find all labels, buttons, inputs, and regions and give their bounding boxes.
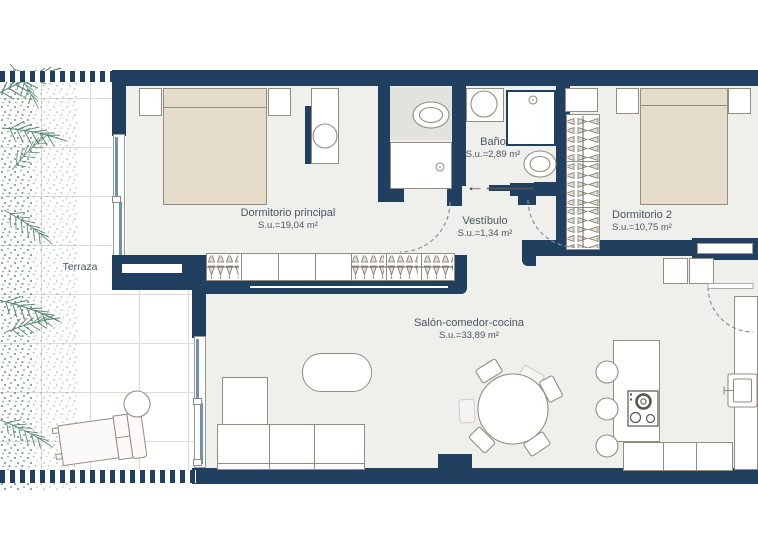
window-tick <box>112 196 121 203</box>
wall-top <box>112 70 758 86</box>
wall-wardrobe-back <box>206 280 456 294</box>
wall-south-pillar <box>438 454 472 470</box>
hall-cabinet <box>689 258 714 284</box>
label-terraza: Terraza <box>48 261 112 273</box>
salon-window-pane <box>200 403 203 464</box>
dorm2-bed <box>640 88 728 205</box>
master-wardrobe <box>206 253 455 281</box>
entrance-arrow-icon: ← <box>453 179 497 194</box>
room-name: Dormitorio principal <box>213 207 363 220</box>
label-dormitorio-principal: Dormitorio principal S.u.=19,04 m² <box>213 207 363 231</box>
dorm2-nightstand-left <box>616 88 639 114</box>
hatch-border-bottom <box>0 470 196 483</box>
label-vestibulo: Vestíbulo S.u.=1,34 m² <box>435 215 535 239</box>
ensuite-wet-floor <box>390 87 452 140</box>
room-name: Baño <box>450 136 536 149</box>
hall-cabinet <box>663 258 688 284</box>
master-window-pane <box>115 137 118 199</box>
label-salon-comedor-cocina: Salón-comedor-cocina S.u.=33,89 m² <box>399 317 539 341</box>
kitchen-counter-right <box>734 296 758 470</box>
room-name: Dormitorio 2 <box>586 209 698 222</box>
label-dormitorio-2: Dormitorio 2 S.u.=10,75 m² <box>586 209 698 233</box>
floor-plan: Terraza Dormitorio principal S.u.=19,04 … <box>0 0 758 544</box>
dorm2-nightstand-right <box>728 88 751 114</box>
sofa-main <box>217 424 365 470</box>
wall-west-upper <box>112 70 126 136</box>
label-bano: Baño S.u.=2,89 m² <box>450 136 536 160</box>
kitchen-cabinets-bottom <box>623 442 733 471</box>
coffee-table <box>302 353 372 392</box>
bed-pillow-line <box>641 105 727 106</box>
ensuite-shower <box>390 142 452 189</box>
hatch-border-top <box>0 71 114 82</box>
master-vanity <box>311 88 339 164</box>
room-area: S.u.=33,89 m² <box>399 330 539 341</box>
dorm2-window-pane <box>697 243 753 254</box>
window-tick <box>193 459 202 466</box>
entrance-door-jamb <box>518 196 536 205</box>
bed-pillow-line <box>164 107 266 108</box>
entrance-door-block <box>510 183 534 196</box>
wall-sw-slot <box>122 264 182 273</box>
window-tick <box>193 398 202 405</box>
wall-entrance-right <box>534 182 556 196</box>
wall-dorm2-south <box>522 240 692 256</box>
master-bed <box>163 88 267 205</box>
room-area: S.u.=2,89 m² <box>450 149 536 160</box>
salon-window-pane <box>196 339 199 400</box>
room-area: S.u.=10,75 m² <box>586 222 698 233</box>
wall-salon-west-upper <box>192 288 206 338</box>
sofa-chaise <box>222 377 268 425</box>
kitchen-island <box>613 340 660 442</box>
wall-wardrobe-cap <box>455 255 467 294</box>
room-name: Vestíbulo <box>435 215 535 228</box>
master-nightstand-left <box>139 88 162 116</box>
room-area: S.u.=19,04 m² <box>213 220 363 231</box>
dorm2-shelf <box>565 88 598 112</box>
room-area: S.u.=1,34 m² <box>435 228 535 239</box>
master-nightstand-right <box>268 88 291 116</box>
bano-basin-counter <box>466 88 504 122</box>
room-name: Terraza <box>48 261 112 273</box>
room-name: Salón-comedor-cocina <box>399 317 539 330</box>
